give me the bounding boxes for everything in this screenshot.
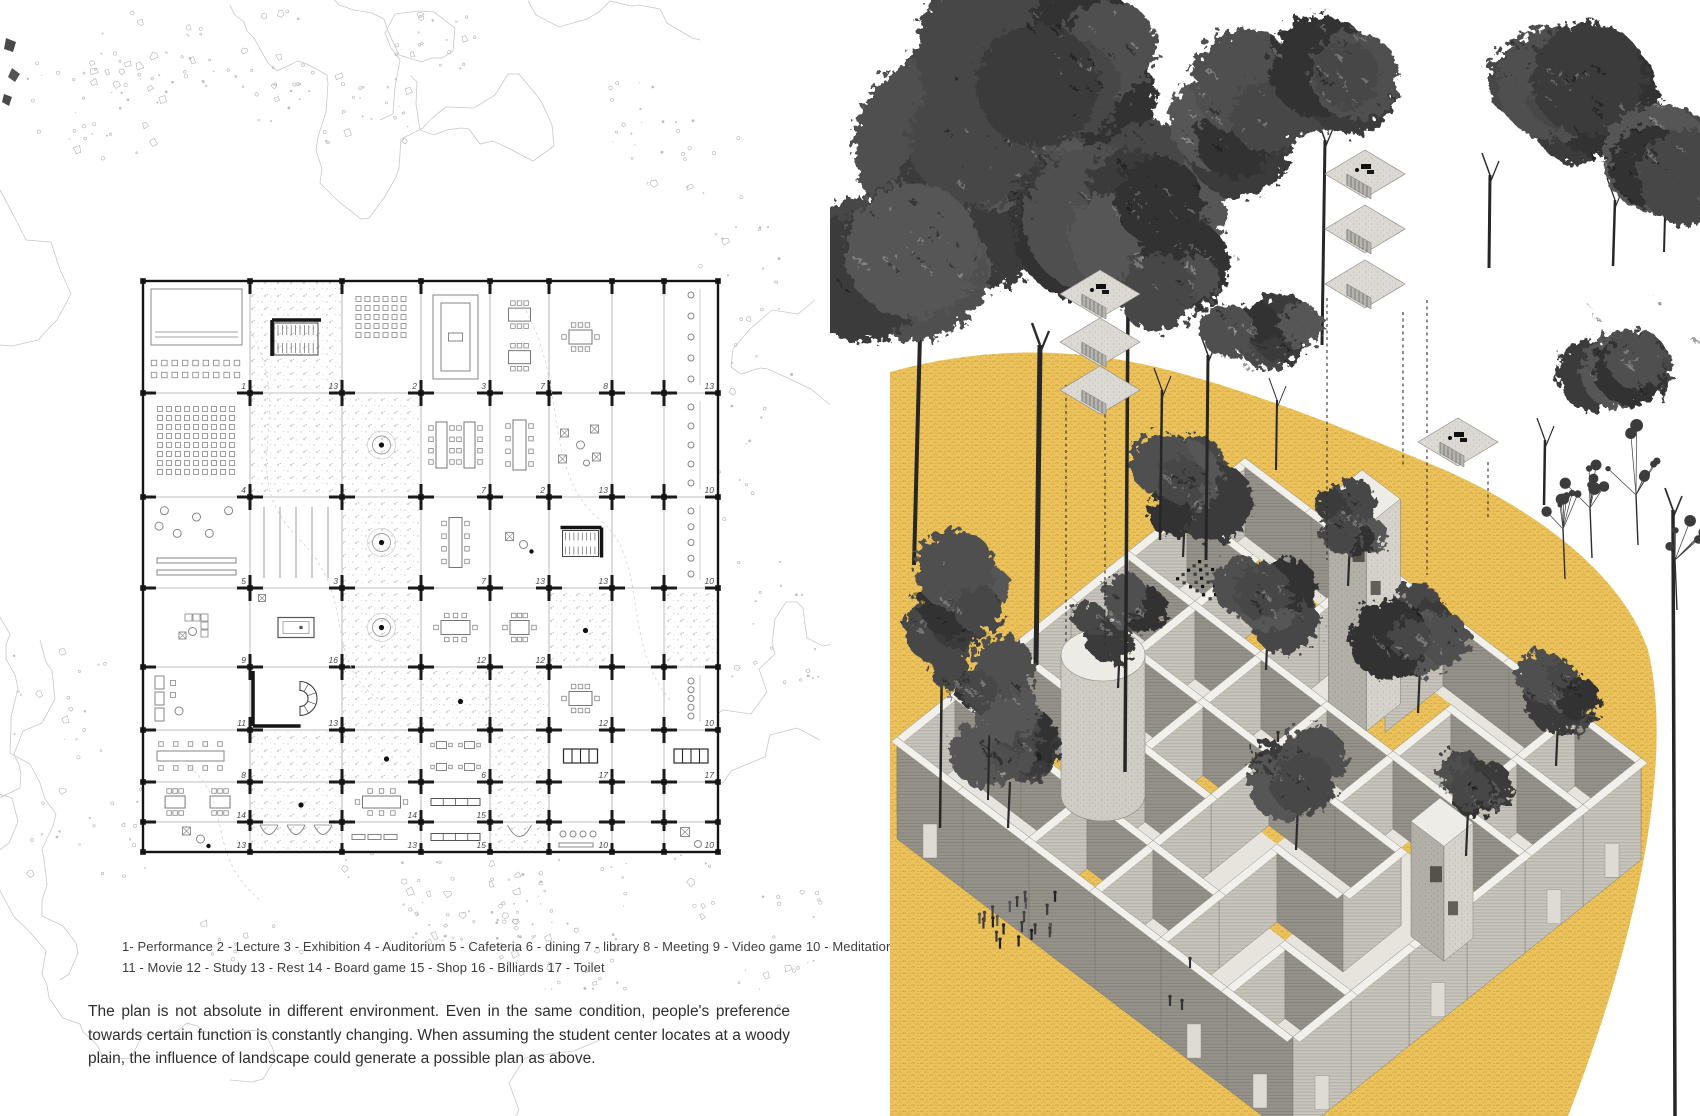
svg-text:8: 8: [603, 381, 608, 391]
tree-canopy: [1557, 299, 1700, 411]
svg-text:8: 8: [241, 770, 246, 780]
plan-room: 13: [250, 281, 342, 393]
svg-text:4: 4: [241, 485, 246, 495]
svg-text:10: 10: [705, 576, 715, 586]
plan-room: [342, 588, 421, 667]
presentation-board: 1132378134721310537131310916121211131210…: [0, 0, 1700, 1116]
svg-text:16: 16: [329, 655, 339, 665]
svg-text:13: 13: [705, 381, 715, 391]
svg-text:13: 13: [329, 718, 339, 728]
floor-plan: 1132378134721310537131310916121211131210…: [140, 278, 721, 900]
tree-canopy: [1269, 15, 1398, 135]
svg-text:10: 10: [599, 840, 609, 850]
plan-room: [490, 822, 549, 852]
plan-room: [490, 667, 549, 730]
svg-text:3: 3: [481, 381, 486, 391]
plan-room: [250, 822, 342, 852]
svg-text:5: 5: [241, 576, 246, 586]
plan-room: [342, 393, 421, 497]
plan-legend: 1- Performance 2 - Lecture 3 - Exhibitio…: [122, 936, 893, 978]
svg-text:15: 15: [477, 840, 487, 850]
plan-room: [250, 393, 342, 497]
legend-line-1: 1- Performance 2 - Lecture 3 - Exhibitio…: [122, 936, 893, 957]
legend-line-2: 11 - Movie 12 - Study 13 - Rest 14 - Boa…: [122, 957, 893, 978]
svg-text:17: 17: [599, 770, 609, 780]
plan-caption: The plan is not absolute in different en…: [88, 1000, 790, 1071]
svg-text:12: 12: [599, 718, 609, 728]
axonometric-panel: [830, 0, 1700, 1116]
svg-text:14: 14: [237, 810, 247, 820]
svg-text:11: 11: [237, 718, 246, 728]
svg-text:6: 6: [481, 770, 486, 780]
svg-text:14: 14: [408, 810, 418, 820]
svg-text:13: 13: [599, 576, 609, 586]
plan-room: [549, 588, 612, 667]
plan-room: [342, 667, 421, 730]
svg-text:9: 9: [241, 655, 246, 665]
svg-text:15: 15: [477, 810, 487, 820]
svg-text:7: 7: [481, 576, 486, 586]
plan-room: [421, 667, 490, 730]
plan-room: [490, 730, 549, 782]
svg-text:10: 10: [705, 718, 715, 728]
svg-text:13: 13: [237, 840, 247, 850]
svg-text:7: 7: [481, 485, 486, 495]
svg-text:2: 2: [539, 485, 545, 495]
svg-text:2: 2: [411, 381, 417, 391]
plan-room: [342, 730, 421, 782]
svg-text:13: 13: [408, 840, 418, 850]
plan-room: [490, 782, 549, 822]
svg-text:13: 13: [599, 485, 609, 495]
svg-text:12: 12: [477, 655, 487, 665]
svg-text:13: 13: [536, 576, 546, 586]
svg-text:12: 12: [536, 655, 546, 665]
floor-plan-panel: 1132378134721310537131310916121211131210…: [0, 0, 830, 1116]
plan-room: [250, 730, 342, 782]
plan-room: [342, 497, 421, 588]
svg-text:17: 17: [705, 770, 715, 780]
svg-text:3: 3: [333, 576, 338, 586]
axonometric-drawing: [830, 0, 1700, 1116]
svg-text:10: 10: [705, 840, 715, 850]
svg-text:13: 13: [329, 381, 339, 391]
svg-text:1: 1: [241, 381, 246, 391]
svg-text:10: 10: [705, 485, 715, 495]
plan-room: [664, 588, 718, 667]
svg-text:7: 7: [540, 381, 545, 391]
plan-room: [250, 782, 342, 822]
